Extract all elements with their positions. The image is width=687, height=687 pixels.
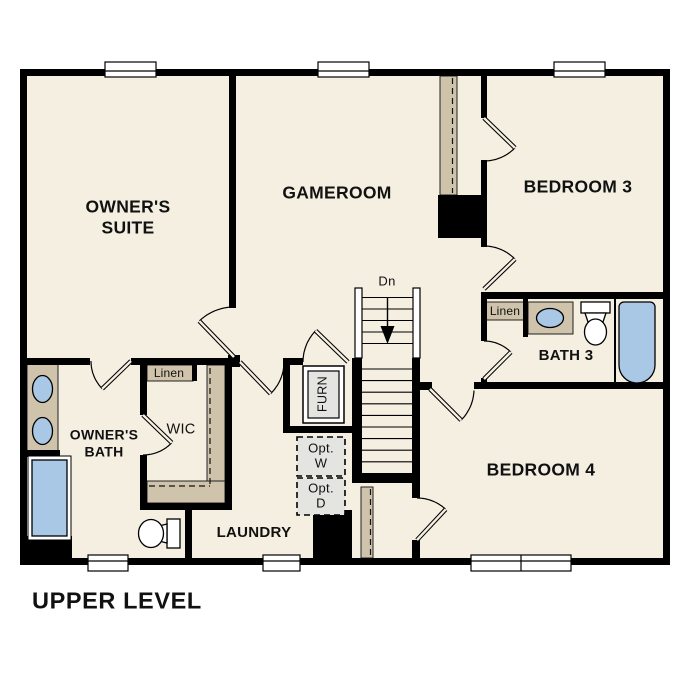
chimney-chase [440,76,457,195]
wall-furn-bottom [283,426,360,433]
label-optional-washer: Opt. W [302,441,340,472]
wall-chase-block [438,195,487,238]
wall-outer-left [20,69,27,565]
room-label-bedroom3: BEDROOM 3 [493,177,663,198]
window-top-1 [105,62,156,77]
window-top-2 [318,62,369,77]
wall-laundry-right-block [313,510,352,558]
wall-hall-bedroom3-b [481,160,487,196]
label-stairs-down: Dn [378,273,395,288]
wall-wic-right [225,365,232,510]
room-label-bedroom4: BEDROOM 4 [456,460,626,481]
wall-suite-bath-mid [131,358,232,365]
room-label-laundry: LAUNDRY [199,524,309,542]
label-linen-bath3: Linen [490,304,520,318]
room-label-owners-suite: OWNER'S SUITE [68,196,188,237]
wall-stairs-left [352,358,362,476]
window-top-3 [554,62,605,77]
window-bottom-1 [88,555,128,571]
room-label-owners-bath: OWNER'S BATH [61,426,147,459]
plan-title: UPPER LEVEL [32,588,202,615]
wall-linen-stub [192,365,197,381]
room-label-wic: WIC [166,421,195,438]
wall-hall-bedroom3-a [481,76,487,118]
floor-plan-drawing [0,0,687,687]
wall-suite-gameroom [229,76,236,308]
room-label-gameroom: GAMEROOM [257,183,417,204]
under-stair-rail [361,487,373,558]
floor-plan-canvas: OWNER'S SUITE GAMEROOM BEDROOM 3 BEDROOM… [0,0,687,687]
stair-rail-left [355,288,362,358]
bath3-tub [619,302,655,383]
wall-wic-left-lower [140,455,147,510]
window-bottom-double [471,555,571,571]
owners-sink-1 [33,376,53,403]
wall-furn-left [283,358,290,433]
stair-rail-right [413,288,420,358]
owners-sink-2 [33,418,53,445]
label-optional-dryer: Opt. D [302,481,340,512]
wall-bath3-tub-partition [614,299,616,384]
label-linen-wic: Linen [154,366,184,380]
wall-bedroom4-door-stub [412,540,420,558]
wall-suite-bath-left [27,358,90,365]
wic-shelf-bottom [147,481,225,503]
wall-bedroom4-top-stub [412,382,432,390]
bath3-sink [537,309,564,328]
label-furnace: FURN [316,376,331,412]
wall-furn-top [283,358,303,365]
wall-laundry-left [185,510,192,558]
wall-bedroom3-bottom [481,292,663,299]
wall-wic-bottom [140,503,232,510]
window-bottom-2 [263,555,300,571]
owners-tub [32,460,67,536]
wall-bath3-linen-stub [523,299,528,337]
owners-toilet [139,519,181,548]
wall-bath3-left [481,299,487,341]
room-label-bath3: BATH 3 [521,347,611,365]
wall-outer-right [663,69,670,565]
wall-stairs-bottom-bar [352,473,420,483]
wall-wic-left-upper [140,365,147,415]
